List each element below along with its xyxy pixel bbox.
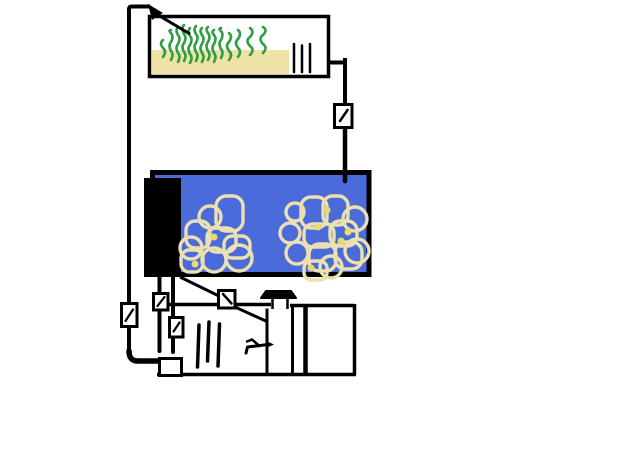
rock-highlight (338, 238, 345, 245)
rock-highlight (315, 224, 322, 231)
overflow-box (144, 178, 181, 277)
aquaponics-diagram (0, 0, 640, 461)
rock-highlight (192, 261, 199, 268)
rock-highlight (324, 207, 331, 214)
rock-highlight (345, 229, 352, 236)
rock-highlight (308, 265, 315, 272)
fish-tank (144, 173, 369, 281)
pump-intake-box (160, 359, 182, 376)
rock-highlight (211, 234, 218, 241)
bell-flare (261, 291, 296, 298)
